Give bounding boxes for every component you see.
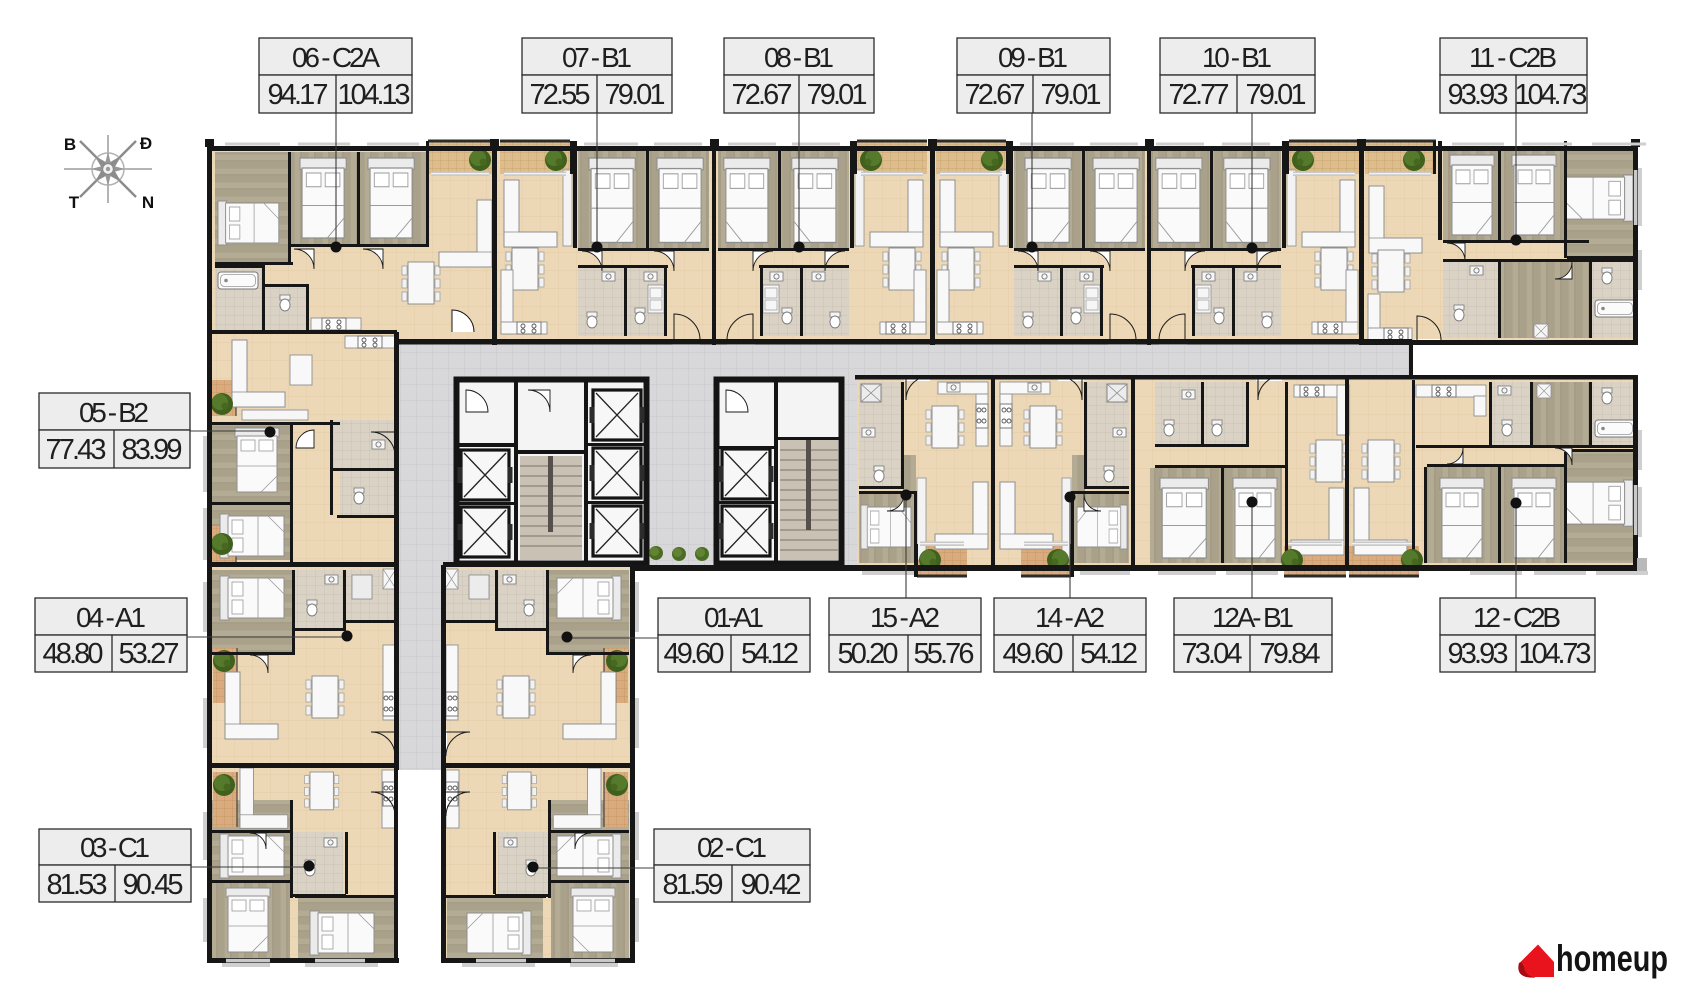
svg-text:01-A1: 01-A1 <box>704 602 764 633</box>
svg-text:N: N <box>142 193 154 212</box>
svg-text:79.01: 79.01 <box>1041 79 1102 111</box>
svg-text:53.27: 53.27 <box>119 638 180 670</box>
svg-text:10 - B1: 10 - B1 <box>1202 42 1272 73</box>
svg-text:94.17: 94.17 <box>268 79 329 111</box>
svg-text:81.59: 81.59 <box>663 869 724 901</box>
svg-text:79.01: 79.01 <box>807 79 868 111</box>
svg-text:73.04: 73.04 <box>1182 638 1243 670</box>
svg-text:T: T <box>69 193 80 212</box>
svg-text:48.80: 48.80 <box>43 638 104 670</box>
svg-text:03 - C1: 03 - C1 <box>80 832 150 863</box>
svg-text:55.76: 55.76 <box>914 638 975 670</box>
svg-text:49.60: 49.60 <box>664 638 725 670</box>
svg-text:15 - A2: 15 - A2 <box>870 602 940 633</box>
svg-text:14 - A2: 14 - A2 <box>1035 602 1105 633</box>
svg-text:B: B <box>64 135 76 154</box>
svg-text:12 - C2B: 12 - C2B <box>1473 602 1561 633</box>
svg-text:104.73: 104.73 <box>1515 79 1588 111</box>
svg-text:72.67: 72.67 <box>965 79 1026 111</box>
svg-text:Đ: Đ <box>140 134 152 153</box>
svg-text:12A- B1: 12A- B1 <box>1212 602 1294 633</box>
svg-text:homeup: homeup <box>1556 938 1668 979</box>
svg-text:08 - B1: 08 - B1 <box>764 42 834 73</box>
svg-text:81.53: 81.53 <box>47 869 108 901</box>
svg-text:90.42: 90.42 <box>741 869 802 901</box>
svg-text:02 - C1: 02 - C1 <box>697 832 767 863</box>
svg-text:90.45: 90.45 <box>123 869 184 901</box>
svg-text:77.43: 77.43 <box>46 434 107 466</box>
svg-text:79.84: 79.84 <box>1260 638 1321 670</box>
svg-text:93.93: 93.93 <box>1448 79 1509 111</box>
svg-text:04 - A1: 04 - A1 <box>76 602 146 633</box>
svg-text:79.01: 79.01 <box>605 79 666 111</box>
svg-text:79.01: 79.01 <box>1246 79 1307 111</box>
svg-text:72.77: 72.77 <box>1169 79 1230 111</box>
svg-text:07 - B1: 07 - B1 <box>562 42 632 73</box>
svg-text:104.73: 104.73 <box>1519 638 1592 670</box>
svg-text:50.20: 50.20 <box>838 638 899 670</box>
svg-text:104.13: 104.13 <box>338 79 411 111</box>
svg-text:54.12: 54.12 <box>1080 638 1138 670</box>
svg-text:72.55: 72.55 <box>530 79 591 111</box>
svg-text:09 - B1: 09 - B1 <box>998 42 1068 73</box>
svg-text:83.99: 83.99 <box>122 434 183 466</box>
svg-text:72.67: 72.67 <box>732 79 793 111</box>
svg-text:54.12: 54.12 <box>741 638 799 670</box>
svg-text:06 - C2A: 06 - C2A <box>292 42 380 73</box>
svg-text:11 - C2B: 11 - C2B <box>1469 42 1557 73</box>
svg-text:49.60: 49.60 <box>1003 638 1064 670</box>
svg-text:93.93: 93.93 <box>1448 638 1509 670</box>
svg-text:05 - B2: 05 - B2 <box>79 397 149 428</box>
